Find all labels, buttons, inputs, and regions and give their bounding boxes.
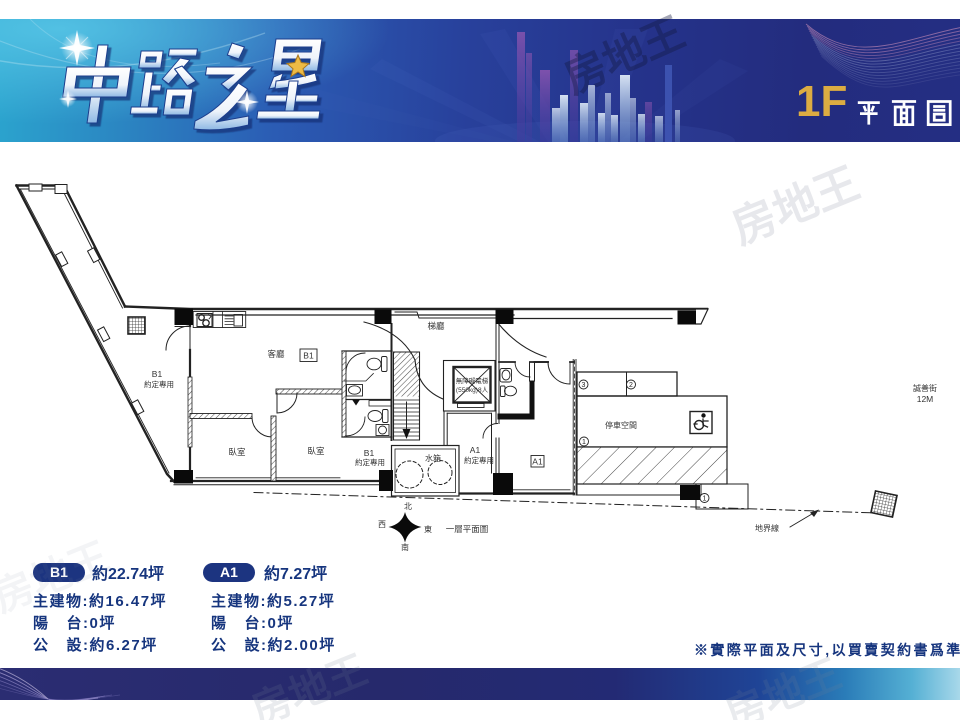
svg-text:北: 北 xyxy=(404,502,412,511)
svg-text:約定專用: 約定專用 xyxy=(144,379,174,389)
svg-text:南: 南 xyxy=(401,542,409,552)
svg-text:臥室: 臥室 xyxy=(228,447,246,457)
svg-text:2: 2 xyxy=(629,382,633,389)
svg-text:無障礙電梯: 無障礙電梯 xyxy=(456,376,489,385)
svg-text:停車空間: 停車空間 xyxy=(605,420,637,430)
svg-text:12M: 12M xyxy=(917,394,934,404)
svg-text:1: 1 xyxy=(582,439,586,446)
svg-text:(550kg)8人: (550kg)8人 xyxy=(456,386,489,394)
svg-text:1: 1 xyxy=(703,496,707,503)
svg-text:地界線: 地界線 xyxy=(755,523,779,533)
svg-text:B1: B1 xyxy=(152,369,163,379)
svg-text:3: 3 xyxy=(582,382,586,389)
svg-text:約定專用: 約定專用 xyxy=(464,455,494,465)
svg-text:B1: B1 xyxy=(303,351,314,361)
svg-text:約定專用: 約定專用 xyxy=(355,457,385,467)
svg-text:水箱: 水箱 xyxy=(425,453,441,463)
svg-text:A1: A1 xyxy=(470,445,481,455)
svg-text:西: 西 xyxy=(378,520,386,529)
svg-text:東: 東 xyxy=(424,524,432,534)
svg-text:誠善街: 誠善街 xyxy=(913,383,937,393)
svg-text:客廳: 客廳 xyxy=(267,349,285,359)
svg-text:A1: A1 xyxy=(532,457,543,467)
svg-text:B1: B1 xyxy=(364,448,375,458)
svg-text:一層平面圖: 一層平面圖 xyxy=(446,524,489,534)
svg-text:臥室: 臥室 xyxy=(307,446,325,456)
svg-text:梯廳: 梯廳 xyxy=(427,321,445,331)
